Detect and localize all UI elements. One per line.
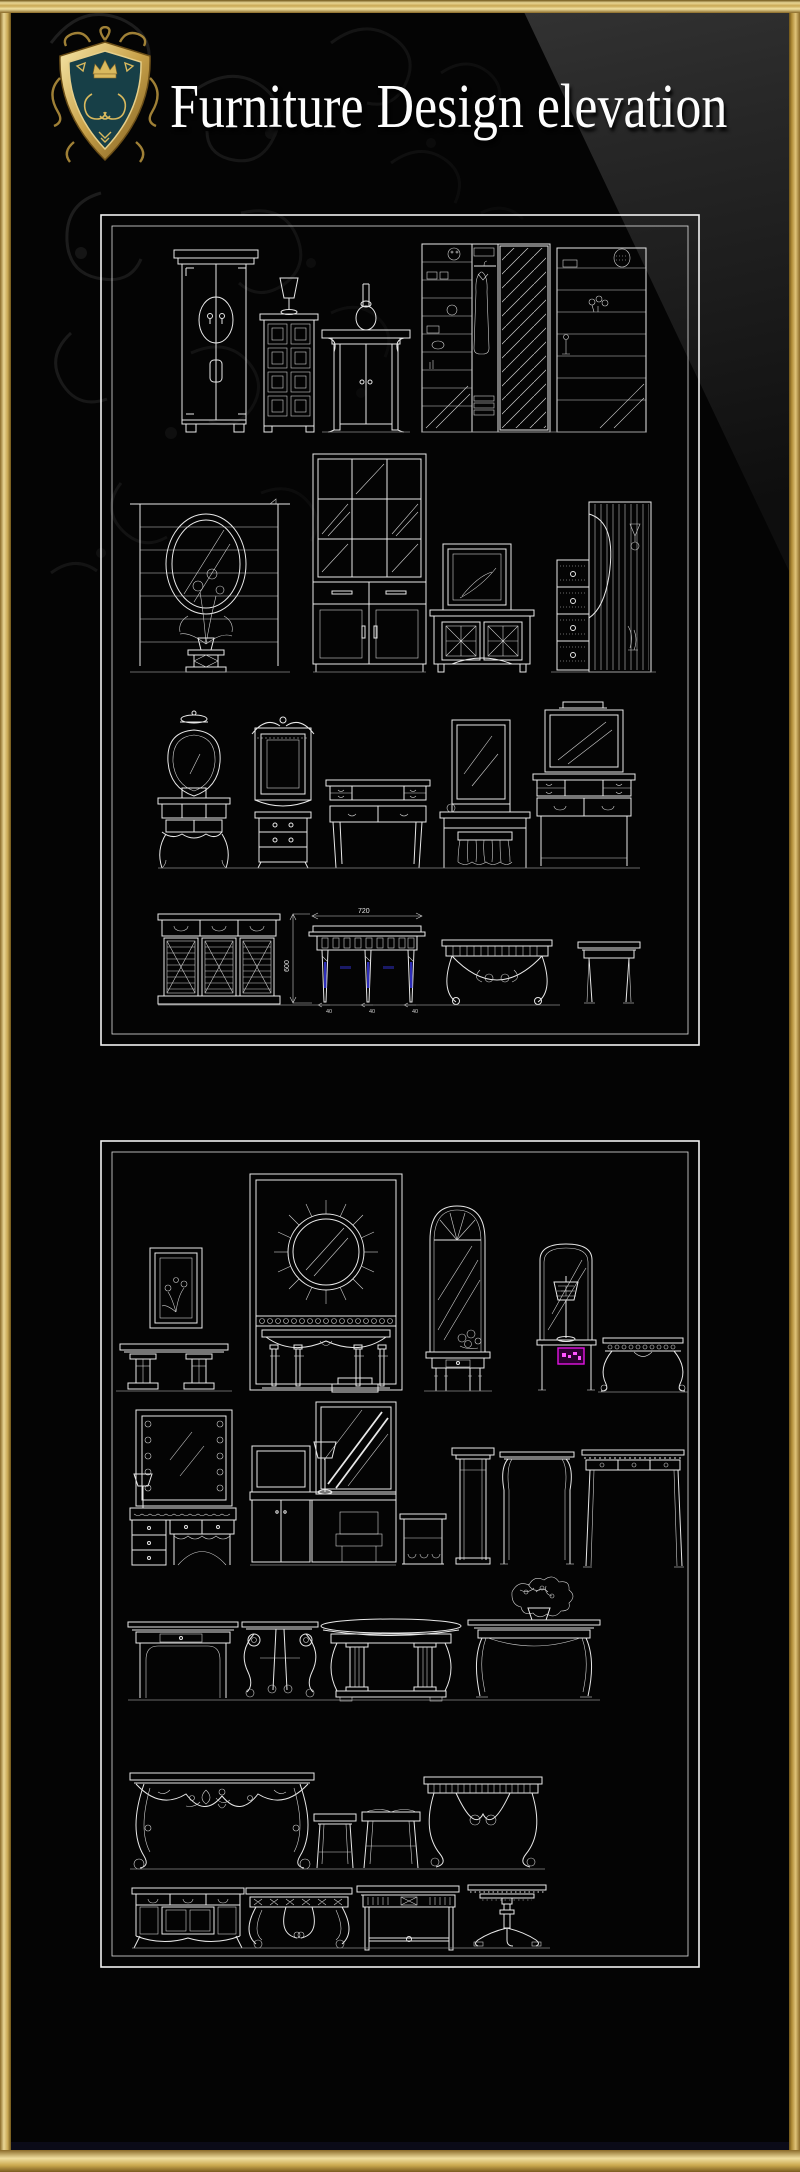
three-door-sideboard [132, 1888, 244, 1948]
gold-frame-right [789, 13, 800, 2150]
curved-leg-console [500, 1452, 574, 1564]
round-pedestal-table [468, 1885, 546, 1946]
console-table-with-drawer [128, 1622, 238, 1698]
dim-foot-label-mid: 40 [369, 1009, 375, 1015]
small-console-table [578, 942, 640, 1003]
wardrobe-closet-with-shelves-clothes-mirror [422, 244, 646, 432]
dim-foot-label-right: 40 [412, 1009, 418, 1015]
drawing-panel-1: 720 600 40 [100, 214, 700, 1046]
pediment-mirror-with-nightstand [252, 717, 314, 868]
closet-shelf-items-right [562, 249, 630, 354]
dim-foot-label-left: 40 [326, 1009, 332, 1015]
gold-frame-bottom [0, 2150, 800, 2172]
mirror-table-with-lamp [537, 1244, 596, 1390]
panel2-outer-border [101, 1141, 699, 1967]
dim-height-label: 600 [284, 960, 291, 972]
lined-stand-with-oval-mirror-and-flower-pedestal [130, 499, 290, 672]
navy-strip [11, 2142, 789, 2150]
glass-display-cabinet [313, 454, 426, 672]
blue-leg-highlights [324, 962, 412, 988]
rococo-side-table [246, 1888, 352, 1948]
hollywood-mirror-vanity [130, 1410, 236, 1565]
arched-mirror-console [424, 1206, 492, 1391]
writing-desk [326, 780, 430, 868]
flower-arrangement [512, 1577, 573, 1617]
dimensioned-console-table: 720 600 40 [284, 908, 425, 1015]
rococo-carved-console [130, 1773, 314, 1869]
wrought-iron-console [442, 940, 552, 1005]
wooden-stool [314, 1814, 356, 1868]
dressing-table-with-mirror-and-skirted-stool [440, 720, 530, 868]
panel2-inner-border [112, 1152, 688, 1956]
gold-frame-top [0, 0, 800, 13]
pedestal-console-with-picture [116, 1248, 232, 1391]
chest-of-drawers-with-lamp [260, 278, 318, 432]
page-title: Furniture Design elevation [170, 72, 727, 143]
magenta-watermark-label [558, 1348, 584, 1364]
two-door-wardrobe [174, 250, 258, 432]
narrow-pedestal-console [452, 1448, 494, 1564]
louvered-three-door-cabinet [158, 914, 280, 1004]
upholstered-stool [362, 1810, 420, 1869]
scroll-leg-side-table [598, 1338, 688, 1392]
table-with-flower-arrangement [468, 1577, 600, 1697]
drawing-panel-2 [100, 1140, 700, 1968]
vanity-unit-with-mirror-lamp-and-stool [250, 1378, 396, 1565]
iron-mosaic-console [424, 1777, 542, 1867]
vanity-with-shield-mirror [158, 711, 230, 868]
mission-style-table [357, 1886, 459, 1950]
dim-width-label: 720 [358, 908, 370, 915]
two-door-cabinet-with-leaning-picture [430, 544, 534, 672]
dresser-with-lighted-mirror [533, 702, 635, 866]
promo-sheet: Furniture Design elevation [0, 0, 800, 2172]
heraldic-crest-logo [44, 26, 166, 168]
sunburst-mirror-console-panel [250, 1174, 402, 1390]
altar-side-cabinet-with-vase [322, 284, 410, 432]
closet-shelf-items [427, 248, 460, 369]
lyre-scroll-table [242, 1622, 318, 1697]
drawer-column-with-curtain-panel [551, 502, 656, 672]
long-reeded-console-desk [582, 1450, 684, 1567]
gold-frame-left [0, 13, 11, 2150]
open-shelf-stand [400, 1514, 446, 1564]
oval-pedestal-dining-table [321, 1619, 461, 1701]
